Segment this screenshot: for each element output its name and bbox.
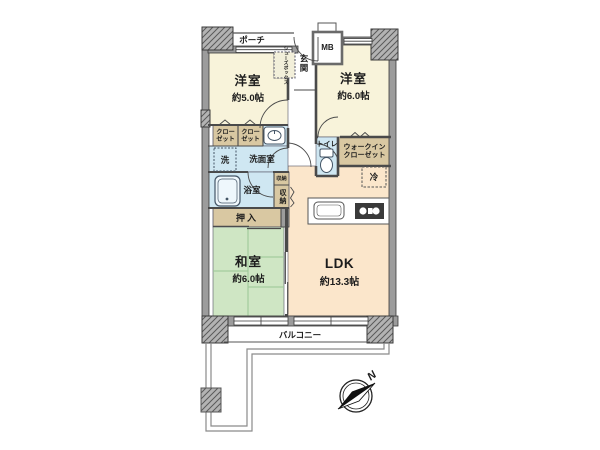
ldk-name: LDK	[288, 254, 391, 272]
wic-label: ウォークインクローゼット	[341, 141, 388, 163]
fridge-label: 冷	[362, 169, 386, 185]
toilet-icon	[320, 149, 333, 173]
bedroom1-name: 洋室	[208, 71, 288, 87]
toilet-label: トイレ	[316, 139, 338, 149]
ldk-size: 約13.3帖	[288, 274, 391, 287]
mb-label: MB	[313, 41, 342, 53]
porch-label: ポーチ	[228, 34, 276, 46]
bedroom2-size: 約6.0帖	[316, 89, 391, 101]
bath-label: 浴室	[238, 184, 266, 196]
bedroom1-size: 約5.0帖	[208, 91, 288, 103]
bedroom2-name: 洋室	[316, 69, 391, 85]
storage-small-label: 収納	[274, 173, 289, 184]
closet1-label: クローゼット	[214, 127, 237, 145]
entrance-label: 玄関	[297, 47, 311, 79]
washbasin-icon	[264, 127, 285, 144]
floorplan-canvas: ポーチ MB 玄関 シューズボックス 洋室 約5.0帖 洋室 約6.0帖 クロー…	[0, 0, 600, 450]
washer-label: 洗	[214, 151, 236, 168]
balcony-label: バルコニー	[270, 328, 330, 341]
bathtub-icon	[215, 176, 240, 206]
closet2-label: クローゼット	[239, 127, 262, 145]
washitsu-name: 和室	[213, 252, 284, 268]
storage-label: 収納	[276, 186, 288, 207]
washroom-label: 洗面室	[238, 153, 286, 165]
kitchen-counter	[308, 198, 389, 224]
washitsu-size: 約6.0帖	[213, 272, 284, 284]
oshiire-label: 押入	[213, 211, 281, 224]
